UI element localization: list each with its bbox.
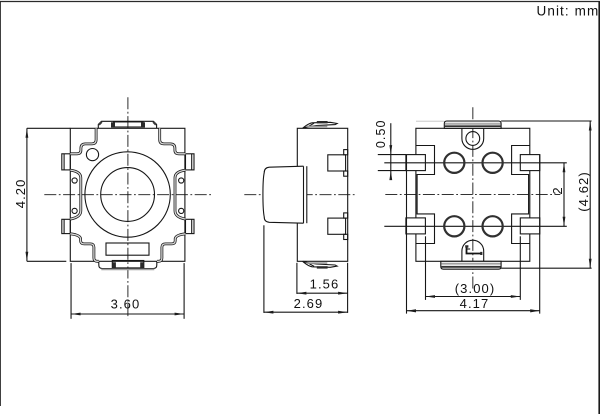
svg-text:2: 2 bbox=[550, 186, 565, 194]
svg-text:(4.62): (4.62) bbox=[576, 171, 591, 212]
svg-text:0.50: 0.50 bbox=[374, 119, 388, 148]
svg-text:4.20: 4.20 bbox=[13, 179, 28, 209]
svg-text:Unit: mm: Unit: mm bbox=[537, 4, 600, 19]
svg-text:2.69: 2.69 bbox=[294, 296, 324, 311]
svg-text:3.60: 3.60 bbox=[111, 296, 141, 311]
svg-text:4.17: 4.17 bbox=[460, 296, 490, 311]
svg-text:1.56: 1.56 bbox=[310, 277, 340, 292]
svg-text:(3.00): (3.00) bbox=[455, 281, 496, 296]
